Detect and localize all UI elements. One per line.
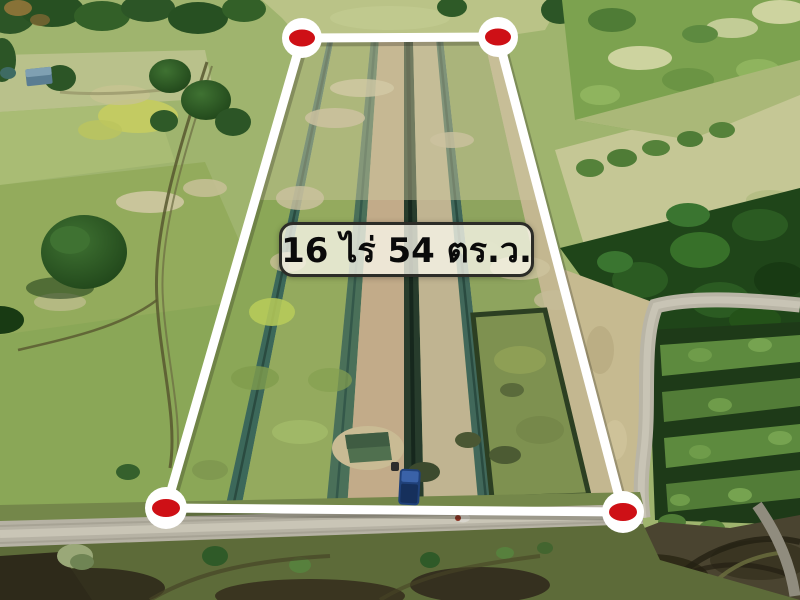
area-label: 16 ไร่ 54 ตร.ว.	[279, 222, 534, 277]
person-near-truck	[391, 462, 399, 471]
orchard-right	[648, 322, 800, 536]
aerial-photo	[0, 0, 800, 600]
farm-building	[25, 67, 53, 87]
corner-marker-bottom-right	[602, 491, 644, 533]
screenshot: 16 ไร่ 54 ตร.ว.	[0, 0, 800, 600]
corner-marker-top-right	[478, 17, 518, 57]
corner-marker-top-left	[282, 18, 322, 58]
truck	[398, 469, 421, 506]
corner-marker-bottom-left	[145, 487, 187, 529]
